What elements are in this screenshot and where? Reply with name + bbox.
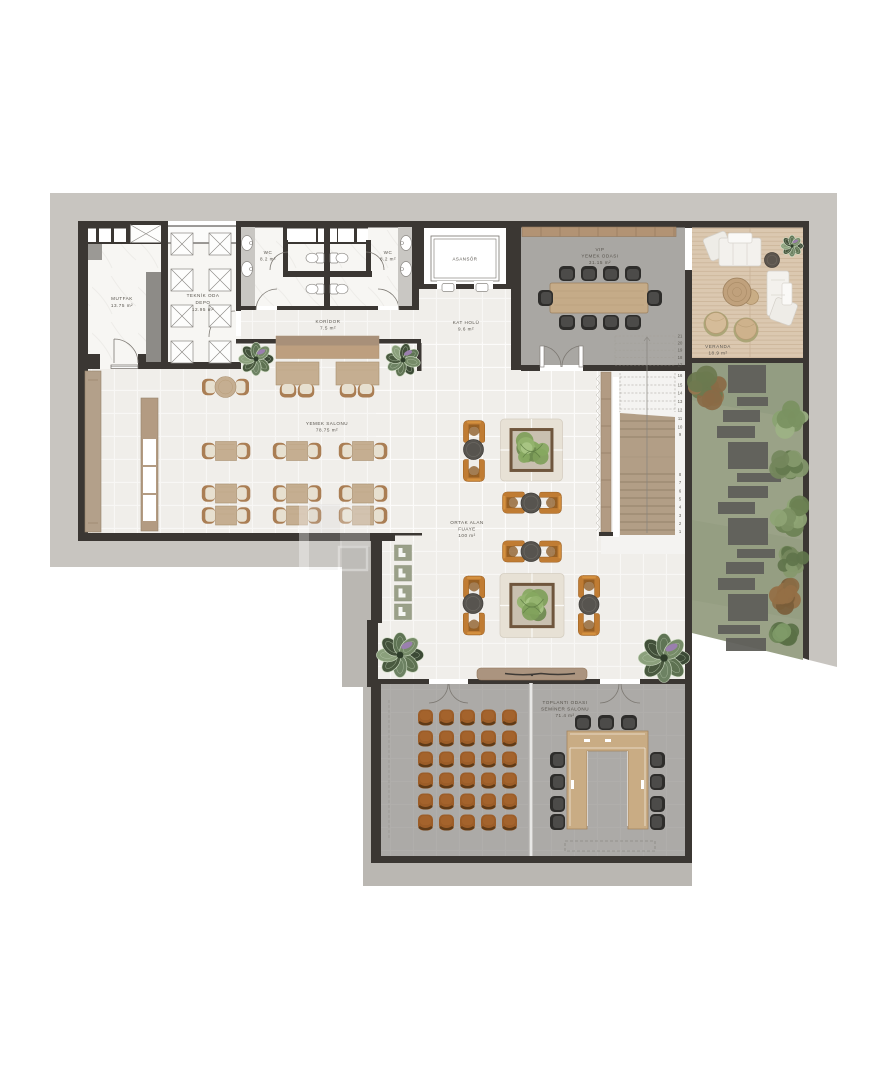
svg-text:11: 11: [678, 416, 683, 421]
svg-text:TOPLANTI ODASI: TOPLANTI ODASI: [543, 700, 588, 705]
svg-text:100 m²: 100 m²: [458, 533, 475, 538]
svg-text:16: 16: [678, 373, 683, 378]
svg-text:20: 20: [678, 341, 683, 346]
svg-text:17: 17: [678, 363, 683, 368]
svg-text:VIP: VIP: [596, 247, 605, 252]
svg-text:YEMEK ODASI: YEMEK ODASI: [581, 254, 618, 259]
svg-text:18.9 m²: 18.9 m²: [708, 351, 727, 356]
svg-text:12.95 m²: 12.95 m²: [192, 307, 214, 312]
svg-text:31.15 m²: 31.15 m²: [589, 260, 611, 265]
svg-text:ORTAK ALAN: ORTAK ALAN: [450, 520, 483, 525]
svg-text:7.5 m²: 7.5 m²: [320, 326, 336, 331]
svg-text:78.75 m²: 78.75 m²: [316, 428, 338, 433]
svg-text:21: 21: [678, 334, 683, 339]
svg-text:DEPO: DEPO: [195, 300, 210, 305]
svg-text:18: 18: [678, 355, 683, 360]
svg-text:8.2 m²: 8.2 m²: [380, 257, 396, 262]
svg-text:YEMEK SALONU: YEMEK SALONU: [306, 421, 348, 426]
svg-text:WC: WC: [264, 250, 273, 255]
svg-text:WC: WC: [384, 250, 393, 255]
svg-text:KAT HOLÜ: KAT HOLÜ: [453, 319, 480, 325]
svg-text:VERANDA: VERANDA: [705, 344, 731, 349]
svg-text:SEMİNER SALONU: SEMİNER SALONU: [541, 706, 589, 712]
svg-text:10: 10: [678, 424, 683, 429]
svg-text:19: 19: [678, 348, 683, 353]
svg-text:TEKNİK ODA: TEKNİK ODA: [187, 292, 220, 298]
svg-text:9.6 m²: 9.6 m²: [458, 327, 474, 332]
svg-text:MUTFAK: MUTFAK: [111, 296, 133, 301]
svg-text:14: 14: [678, 391, 683, 396]
svg-text:FUAYE: FUAYE: [458, 527, 475, 532]
svg-text:13.75 m²: 13.75 m²: [111, 303, 133, 308]
svg-text:8.2 m²: 8.2 m²: [260, 257, 276, 262]
svg-text:ASANSÖR: ASANSÖR: [453, 257, 478, 262]
svg-text:13: 13: [678, 399, 683, 404]
svg-text:12: 12: [678, 407, 683, 412]
svg-text:15: 15: [678, 382, 683, 387]
svg-text:KORİDOR: KORİDOR: [316, 318, 341, 324]
svg-text:71.4 m²: 71.4 m²: [555, 713, 574, 718]
